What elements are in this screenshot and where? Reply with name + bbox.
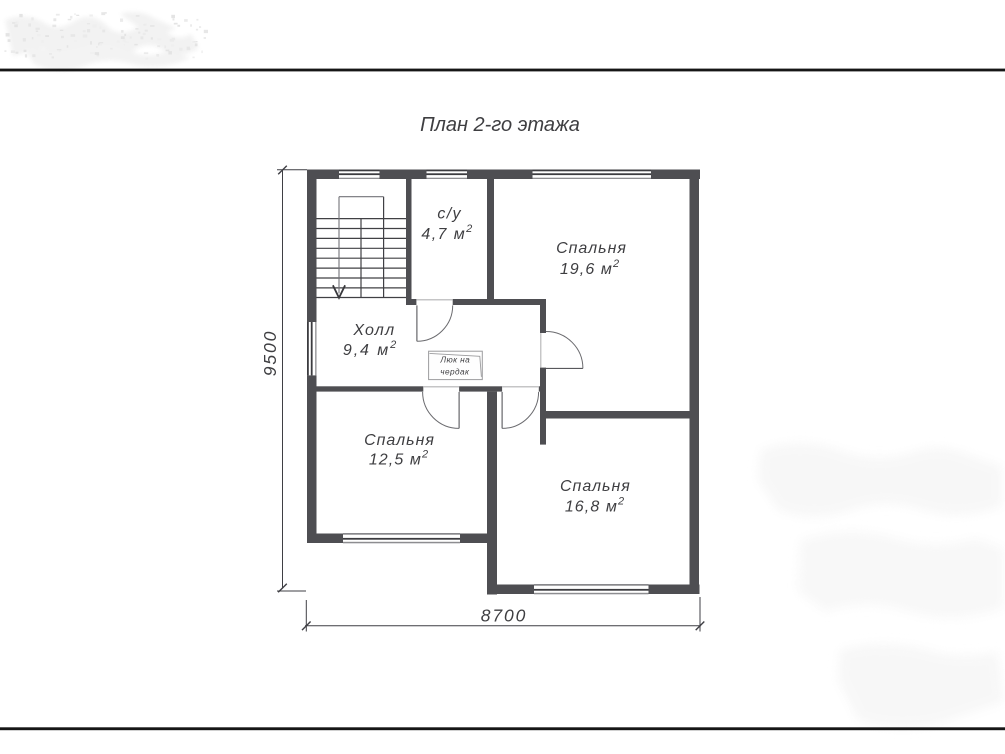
svg-text:12,5 м2: 12,5 м2 xyxy=(369,449,429,469)
svg-text:Спальня: Спальня xyxy=(556,240,627,257)
svg-text:9,4 м2: 9,4 м2 xyxy=(343,339,398,359)
svg-text:19,6 м2: 19,6 м2 xyxy=(560,258,620,278)
svg-text:Спальня: Спальня xyxy=(364,432,435,449)
svg-text:Холл: Холл xyxy=(352,322,395,339)
svg-text:План 2-го этажа: План 2-го этажа xyxy=(420,114,580,136)
svg-text:с/у: с/у xyxy=(437,206,461,223)
svg-text:4,7 м2: 4,7 м2 xyxy=(421,223,473,243)
svg-text:16,8 м2: 16,8 м2 xyxy=(565,496,625,516)
svg-text:Спальня: Спальня xyxy=(560,478,631,495)
svg-text:8700: 8700 xyxy=(481,606,528,626)
svg-text:Люк на: Люк на xyxy=(439,355,470,365)
svg-text:9500: 9500 xyxy=(260,330,280,377)
svg-text:чердак: чердак xyxy=(440,367,470,377)
